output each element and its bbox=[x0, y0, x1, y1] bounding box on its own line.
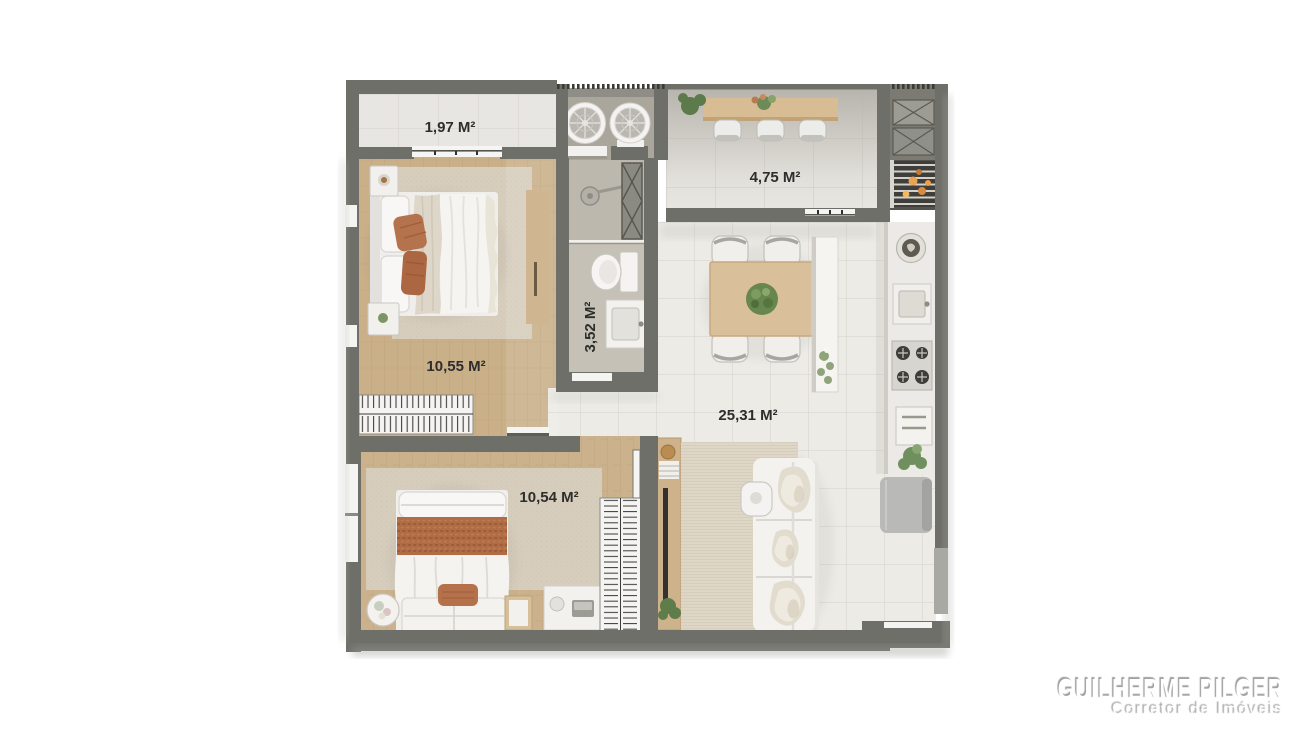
svg-text:3,52 M²: 3,52 M² bbox=[582, 302, 599, 353]
svg-text:10,55 M²: 10,55 M² bbox=[426, 358, 485, 375]
svg-text:10,54 M²: 10,54 M² bbox=[519, 489, 578, 506]
svg-text:25,31 M²: 25,31 M² bbox=[718, 407, 777, 424]
svg-text:4,75 M²: 4,75 M² bbox=[750, 169, 801, 186]
svg-text:1,97 M²: 1,97 M² bbox=[425, 119, 476, 136]
